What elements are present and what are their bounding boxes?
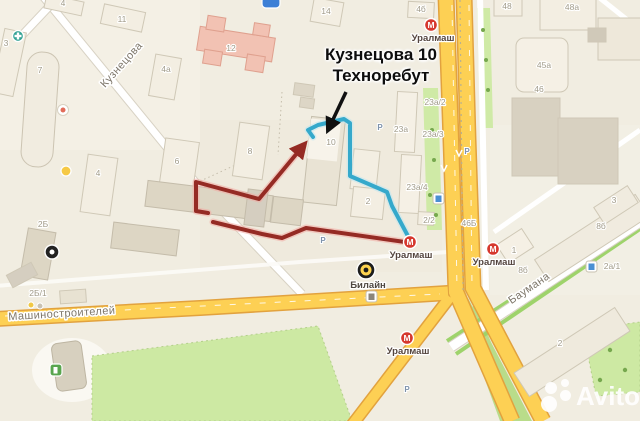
avito-watermark: Avito [541,378,640,414]
avito-logo-circle [560,390,571,401]
building-label: 23а/4 [406,182,428,192]
parking-icon: P [377,123,383,132]
bus-stop-icon [586,261,597,272]
building-label: 4 [61,0,66,8]
metro-glyph: М [406,237,413,247]
building-label: 46 [534,84,544,94]
building-label: 2Б/1 [29,288,47,298]
destination-annotation: Кузнецова 10 Техноребут [300,44,462,86]
metro-station-name: Уралмаш [387,346,430,357]
tram-stop-icon [366,291,377,302]
bus-stop-icon [433,193,444,204]
building-label: 2/2 [423,215,435,225]
parking-icon: P [320,236,326,245]
building-label: 2 [366,196,371,206]
building-label: 12 [226,43,236,53]
building-label: 10 [326,137,336,147]
building-label: 4а [161,64,171,74]
avito-logo-circle [545,382,557,394]
building-label: 4б [416,4,426,14]
avito-wordmark: Avito [576,381,640,412]
building-label: 46Б [461,218,476,228]
building-label: 4 [96,168,101,178]
route-badge-icon [262,0,280,8]
annotation-line1: Кузнецова 10 [300,44,462,65]
building-label: 48 [502,1,512,11]
building-label: 45а [537,60,551,70]
building-label: 14 [321,6,331,16]
parking-icon: P [464,147,470,156]
building-label: 2Б [38,219,49,229]
building-label: 6 [175,156,180,166]
metro-station-name: Уралмаш [390,250,433,261]
building-label: 7 [38,65,43,75]
building-label: 8 [248,146,253,156]
building-label: 1 [512,245,517,255]
metro-station-name: Уралмаш [473,257,516,268]
metro-glyph: М [403,333,410,343]
avito-logo-circle [561,379,569,387]
map-screenshot: Билайн 411374а12144б46810223а/223а23а/32… [0,0,640,421]
beeline-logo-icon [357,261,375,279]
building-label: 11 [118,14,127,24]
building-label: 23а/2 [424,97,446,107]
building-label: 3 [4,38,9,48]
shop-icon [61,166,71,176]
building-label: 2а/1 [604,261,621,271]
building-label: 2 [558,338,563,348]
annotation-line2: Техноребут [300,65,462,86]
building-label: 8б [596,221,606,231]
building-label: 3 [612,195,617,205]
building-label: 23а/3 [422,129,444,139]
building-label: 8б [518,265,528,275]
metro-glyph: М [427,20,434,30]
avito-logo-circle [541,396,557,412]
beeline-label: Билайн [350,280,386,291]
metro-glyph: М [489,244,496,254]
school-building [195,14,278,73]
parking-icon: P [404,385,410,394]
building-label: 48а [565,2,579,12]
building-label: 23а [394,124,408,134]
metro-station-name: Уралмаш [412,33,455,44]
small-poi-icon [28,302,34,308]
